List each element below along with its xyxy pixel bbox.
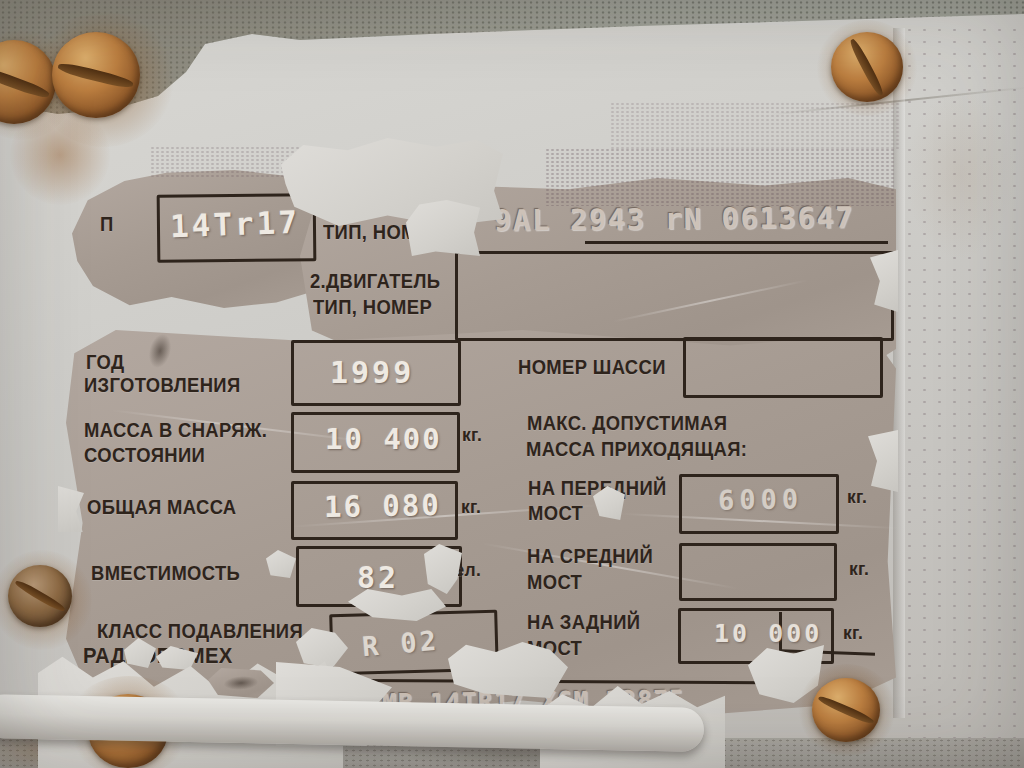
paint-chip xyxy=(58,486,84,532)
nameplate-photo: П ТИП, НОМЕР 2.ДВИГАТЕЛЬ ТИП, НОМЕР ГОД … xyxy=(0,0,1024,768)
screw-bottom-right xyxy=(812,678,880,742)
chassis-box xyxy=(683,337,883,398)
serial-underline xyxy=(585,241,888,244)
gross-weight-unit: кг. xyxy=(461,497,481,518)
rear-axle-value: 10 000 xyxy=(714,619,822,648)
front-axle-value: 6000 xyxy=(718,483,804,515)
type-designation-value: 14Tr17 xyxy=(169,204,300,245)
engine-label-line1: 2.ДВИГАТЕЛЬ xyxy=(310,270,440,292)
type-label-fragment: П xyxy=(100,213,114,235)
engine-label-line2: ТИП, НОМЕР xyxy=(313,296,432,318)
curb-weight-label-line2: СОСТОЯНИИ xyxy=(84,444,205,466)
wall-stain xyxy=(905,90,1015,260)
engine-box xyxy=(455,251,894,341)
gross-weight-label: ОБЩАЯ МАССА xyxy=(87,496,237,518)
chassis-label: НОМЕР ШАССИ xyxy=(518,356,666,378)
year-label-line1: ГОД xyxy=(86,351,124,373)
max-load-heading-line1: МАКС. ДОПУСТИМАЯ xyxy=(527,412,727,434)
middle-axle-label-line1: НА СРЕДНИЙ xyxy=(527,545,653,567)
middle-axle-label-line2: МОСТ xyxy=(527,571,582,593)
curb-weight-value: 10 400 xyxy=(325,422,442,456)
curb-weight-unit: кг. xyxy=(462,425,482,446)
gross-weight-value: 16 080 xyxy=(324,488,441,524)
paint-residue xyxy=(150,146,305,178)
screw-top-left-b xyxy=(52,32,140,118)
screw-top-right xyxy=(831,32,903,102)
capacity-label: ВМЕСТИМОСТЬ xyxy=(91,562,240,584)
paint-chip xyxy=(406,200,480,256)
capacity-value: 82 xyxy=(357,560,399,595)
middle-axle-unit: кг. xyxy=(849,559,869,580)
radio-class-label-line1: КЛАСС ПОДАВЛЕНИЯ xyxy=(97,620,303,642)
max-load-heading-line2: МАССА ПРИХОДЯЩАЯ: xyxy=(526,438,747,460)
curb-weight-label-line1: МАССА В СНАРЯЖ. xyxy=(84,419,267,441)
middle-axle-box xyxy=(679,543,837,601)
rear-axle-label-line1: НА ЗАДНИЙ xyxy=(527,611,640,633)
year-label-line2: ИЗГОТОВЛЕНИЯ xyxy=(84,374,241,396)
serial-number-value: 9AL 2943 rN 0613647 xyxy=(494,200,855,237)
front-axle-label-line2: МОСТ xyxy=(528,502,583,524)
screw-left-middle xyxy=(8,565,72,627)
rear-axle-unit: кг. xyxy=(843,623,863,644)
paint-residue xyxy=(545,148,895,206)
front-axle-unit: кг. xyxy=(847,487,867,508)
dark-smudge xyxy=(217,672,264,693)
year-value: 1999 xyxy=(330,355,414,390)
